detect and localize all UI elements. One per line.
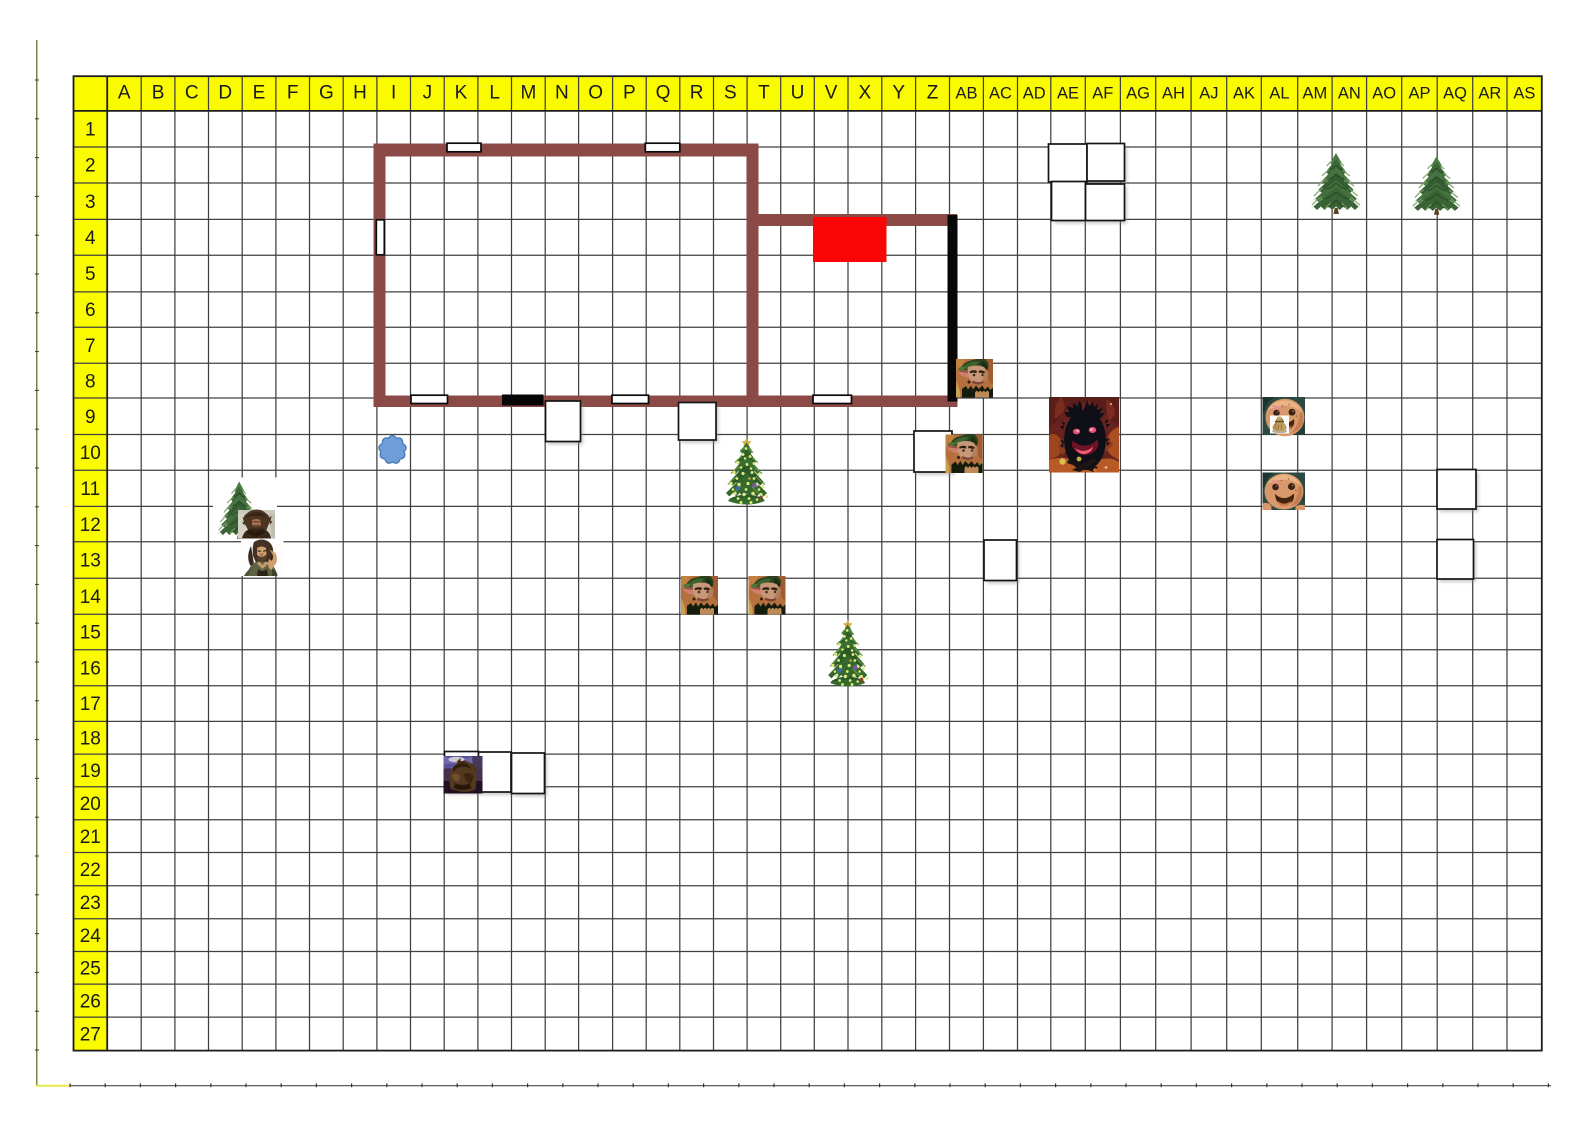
svg-text:AB: AB — [955, 85, 977, 103]
svg-text:U: U — [791, 83, 805, 104]
svg-text:AD: AD — [1023, 85, 1046, 103]
svg-text:AF: AF — [1092, 85, 1113, 103]
svg-text:F: F — [287, 83, 299, 104]
svg-text:M: M — [520, 83, 536, 104]
svg-text:3: 3 — [85, 192, 96, 213]
svg-text:2: 2 — [85, 156, 96, 177]
svg-text:AR: AR — [1478, 85, 1501, 103]
svg-text:AH: AH — [1162, 85, 1185, 103]
svg-text:15: 15 — [80, 623, 101, 644]
svg-text:AQ: AQ — [1443, 85, 1467, 103]
svg-text:AC: AC — [989, 85, 1012, 103]
svg-text:4: 4 — [85, 228, 96, 249]
svg-text:X: X — [859, 83, 872, 104]
svg-text:27: 27 — [80, 1025, 101, 1046]
svg-text:AM: AM — [1303, 85, 1328, 103]
svg-text:19: 19 — [80, 761, 101, 782]
svg-text:AP: AP — [1408, 85, 1430, 103]
svg-text:22: 22 — [80, 860, 101, 881]
svg-text:AS: AS — [1513, 85, 1535, 103]
svg-text:6: 6 — [85, 300, 96, 321]
svg-text:S: S — [724, 83, 737, 104]
svg-text:Z: Z — [927, 83, 939, 104]
svg-text:17: 17 — [80, 694, 101, 715]
svg-text:26: 26 — [80, 991, 101, 1012]
svg-text:K: K — [455, 83, 468, 104]
svg-text:AK: AK — [1233, 85, 1255, 103]
svg-text:AL: AL — [1269, 85, 1289, 103]
svg-text:H: H — [353, 83, 367, 104]
svg-text:AO: AO — [1372, 85, 1396, 103]
svg-text:11: 11 — [80, 479, 100, 500]
svg-text:16: 16 — [80, 658, 101, 679]
svg-text:21: 21 — [80, 827, 101, 848]
svg-text:L: L — [489, 83, 500, 104]
svg-text:Q: Q — [656, 83, 671, 104]
svg-text:12: 12 — [80, 515, 101, 536]
svg-text:10: 10 — [80, 443, 101, 464]
svg-text:G: G — [319, 83, 334, 104]
svg-text:D: D — [218, 83, 232, 104]
svg-text:E: E — [253, 83, 266, 104]
svg-text:1: 1 — [85, 120, 96, 141]
svg-text:R: R — [690, 83, 704, 104]
svg-text:AN: AN — [1338, 85, 1361, 103]
svg-text:18: 18 — [80, 729, 101, 750]
svg-text:V: V — [825, 83, 838, 104]
svg-text:I: I — [391, 83, 396, 104]
svg-text:AE: AE — [1057, 85, 1079, 103]
svg-text:7: 7 — [85, 336, 96, 357]
svg-text:23: 23 — [80, 893, 101, 914]
svg-text:20: 20 — [80, 794, 101, 815]
svg-text:25: 25 — [80, 959, 101, 980]
svg-text:13: 13 — [80, 551, 101, 572]
svg-text:O: O — [588, 83, 603, 104]
svg-text:AG: AG — [1126, 85, 1150, 103]
svg-text:B: B — [152, 83, 165, 104]
svg-text:24: 24 — [80, 926, 102, 947]
svg-text:14: 14 — [80, 587, 102, 608]
svg-text:5: 5 — [85, 264, 96, 285]
svg-text:C: C — [185, 83, 199, 104]
svg-text:A: A — [118, 83, 131, 104]
svg-text:9: 9 — [85, 407, 96, 428]
svg-text:8: 8 — [85, 371, 96, 392]
svg-text:N: N — [555, 83, 569, 104]
svg-text:P: P — [623, 83, 636, 104]
svg-text:Y: Y — [892, 83, 905, 104]
svg-text:T: T — [758, 83, 770, 104]
svg-text:J: J — [423, 83, 433, 104]
svg-text:AJ: AJ — [1199, 85, 1218, 103]
